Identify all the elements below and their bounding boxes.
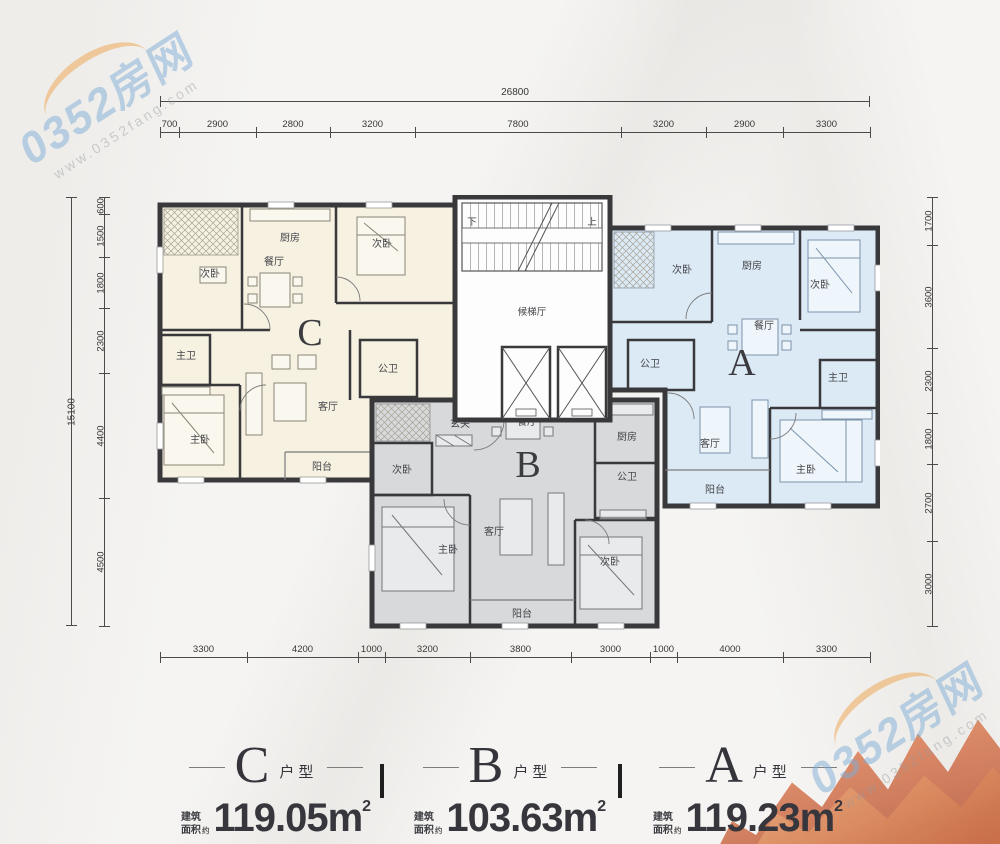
dim-segment: 3300 [783, 645, 870, 663]
core-stairs-elevators: 下 上 候梯厅 [455, 197, 610, 420]
dimension-bottom-segments: 3300 4200 1000 3200 3800 3000 1000 4000 … [160, 645, 870, 663]
room-label-bed2a: 次卧 [392, 463, 412, 476]
car-swoosh-icon [29, 25, 148, 118]
shoe-cabinet-icon [436, 435, 472, 446]
bed-icon [808, 240, 860, 312]
bed-icon [780, 420, 862, 482]
legend-divider [380, 764, 384, 798]
room-label-bed2b: 次卧 [810, 278, 830, 291]
unit-b-letter: B [515, 444, 540, 486]
area-sup: 2 [362, 798, 371, 816]
dim-segment: 3300 [160, 645, 247, 663]
wardrobe-icon [600, 510, 646, 519]
area-sup: 2 [834, 798, 843, 816]
room-label-public-bath: 公卫 [617, 472, 637, 483]
area-prefix: 建筑 面积约 [414, 811, 443, 837]
unit-a-bay-hatch [614, 232, 654, 288]
dash [659, 767, 695, 768]
dim-segment: 700 [160, 120, 179, 138]
stair-landing [462, 228, 602, 243]
dash [189, 767, 225, 768]
dim-segment: 3200 [330, 120, 415, 138]
dim-segment: 2800 [256, 120, 330, 138]
room-label-living: 客厅 [484, 525, 504, 538]
unit-c-letter: C [297, 312, 322, 354]
dim-segment: 1800 [920, 413, 938, 464]
legend-unit-a: A 户型 建筑 面积约 119.23m 2 三室| 两厅| 两卫 [640, 736, 856, 844]
dim-segment: 1800 [92, 257, 110, 308]
dimension-left-segments: 600 1500 1800 2300 4400 4500 [92, 197, 110, 626]
dim-segment: 3600 [920, 245, 938, 348]
room-label-bed2a: 次卧 [672, 263, 692, 276]
kitchen-counter-icon [718, 232, 794, 244]
room-label-public-bath: 公卫 [640, 359, 660, 370]
dim-segment: 1500 [92, 214, 110, 257]
room-label-kitchen: 厨房 [742, 259, 762, 272]
legend-letter: C [235, 744, 270, 788]
legend-unit-c: C 户型 建筑 面积约 119.05m 2 三室| 两厅| 两卫 [168, 736, 384, 844]
room-label-balcony: 阳台 [312, 460, 332, 473]
dim-segment: 4500 [92, 498, 110, 626]
coffee-table-icon [500, 499, 532, 555]
unit-a-letter: A [728, 342, 756, 384]
dimension-top-total: 26800 [160, 88, 870, 104]
dim-segment: 600 [92, 197, 110, 214]
dim-segment: 3000 [920, 541, 938, 626]
unit-c-bay-hatch [164, 209, 238, 255]
area-prefix: 建筑 面积约 [653, 811, 682, 837]
unit-b-entry-hatch [376, 404, 430, 441]
dim-segment: 3200 [621, 120, 706, 138]
dim-segment: 3300 [783, 120, 870, 138]
room-label-master-bath: 主卫 [828, 372, 848, 384]
elevator-hall-label: 候梯厅 [518, 306, 547, 318]
room-label-bed2b: 次卧 [372, 237, 392, 250]
dim-value: 26800 [160, 87, 870, 98]
dim-segment: 1000 [650, 645, 677, 663]
room-label-dining: 餐厅 [264, 255, 284, 268]
sofa-icon [246, 373, 262, 435]
dimension-right-segments: 1700 3600 2300 1800 2700 3000 [920, 197, 938, 626]
wardrobe-icon [162, 387, 210, 395]
room-label-living: 客厅 [318, 400, 338, 413]
legend-suffix: 户型 [753, 761, 791, 782]
dim-segment: 4000 [677, 645, 783, 663]
dim-segment: 2900 [706, 120, 783, 138]
dim-segment: 1700 [920, 197, 938, 245]
room-label-master-bath: 主卫 [176, 350, 196, 362]
dim-segment: 2300 [92, 308, 110, 373]
sofa-icon [548, 493, 564, 565]
dim-segment: 3000 [571, 645, 650, 663]
legend-letter: B [469, 744, 504, 788]
bed-icon [164, 395, 224, 465]
dim-value: 15100 [67, 398, 78, 426]
dim-segment: 2900 [179, 120, 256, 138]
room-label-master-bed: 主卧 [438, 543, 458, 556]
dimension-left-total: 15100 [64, 197, 80, 626]
sofa-icon [752, 400, 768, 458]
area-value: 119.23m [685, 798, 834, 838]
room-label-master-bed: 主卧 [796, 463, 816, 476]
dim-segment: 1000 [358, 645, 385, 663]
area-sup: 2 [597, 798, 606, 816]
dim-segment: 2700 [920, 464, 938, 541]
dash [327, 767, 363, 768]
room-label-public-bath: 公卫 [378, 364, 398, 375]
area-prefix: 建筑 面积约 [181, 811, 210, 837]
dim-segment: 3800 [470, 645, 571, 663]
floorplan-page: 0352房网 www.0352fang.com 26800 700 2900 2… [0, 0, 1000, 844]
elevator-counterweight [516, 409, 536, 416]
dash [561, 767, 597, 768]
dim-segment: 7800 [415, 120, 621, 138]
legend-suffix: 户型 [513, 761, 551, 782]
legend-suffix: 户型 [279, 761, 317, 782]
bed-icon [580, 537, 642, 609]
stair-up-label: 上 [587, 217, 597, 228]
dim-segment: 4200 [247, 645, 358, 663]
room-label-living: 客厅 [700, 437, 720, 450]
unit-b: 玄关 餐厅 厨房 公卫 次卧 主卧 客厅 次卧 阳台 B [369, 400, 657, 629]
dim-segment: 4400 [92, 373, 110, 498]
legend-divider [618, 764, 622, 798]
dim-segment: 3200 [385, 645, 470, 663]
room-label-master-bed: 主卧 [190, 433, 210, 446]
stair-down-label: 下 [467, 217, 477, 228]
legend-letter: A [705, 744, 743, 788]
dash [423, 767, 459, 768]
dim-segment: 2300 [920, 348, 938, 413]
wardrobe-icon [822, 410, 872, 419]
coffee-table-icon [274, 383, 306, 421]
dash [801, 767, 837, 768]
legend-unit-b: B 户型 建筑 面积约 103.63m 2 三室| 两厅| 一卫 [402, 736, 618, 844]
room-label-kitchen: 厨房 [617, 430, 637, 443]
area-value: 119.05m [213, 798, 362, 838]
room-label-balcony: 阳台 [512, 607, 532, 620]
elevator-counterweight [572, 409, 592, 416]
dimension-top-segments: 700 2900 2800 3200 7800 3200 2900 3300 [160, 120, 870, 138]
kitchen-counter-icon [250, 209, 330, 221]
room-label-balcony: 阳台 [705, 483, 725, 496]
room-label-bed2a: 次卧 [200, 267, 220, 280]
floor-plan: 次卧 厨房 餐厅 次卧 主卫 公卫 主卧 客厅 阳台 C [150, 195, 880, 630]
dining-table-icon [260, 273, 290, 307]
room-label-bed2b: 次卧 [600, 555, 620, 568]
room-label-dining: 餐厅 [754, 319, 774, 332]
room-label-kitchen: 厨房 [280, 231, 300, 244]
area-value: 103.63m [446, 798, 597, 838]
